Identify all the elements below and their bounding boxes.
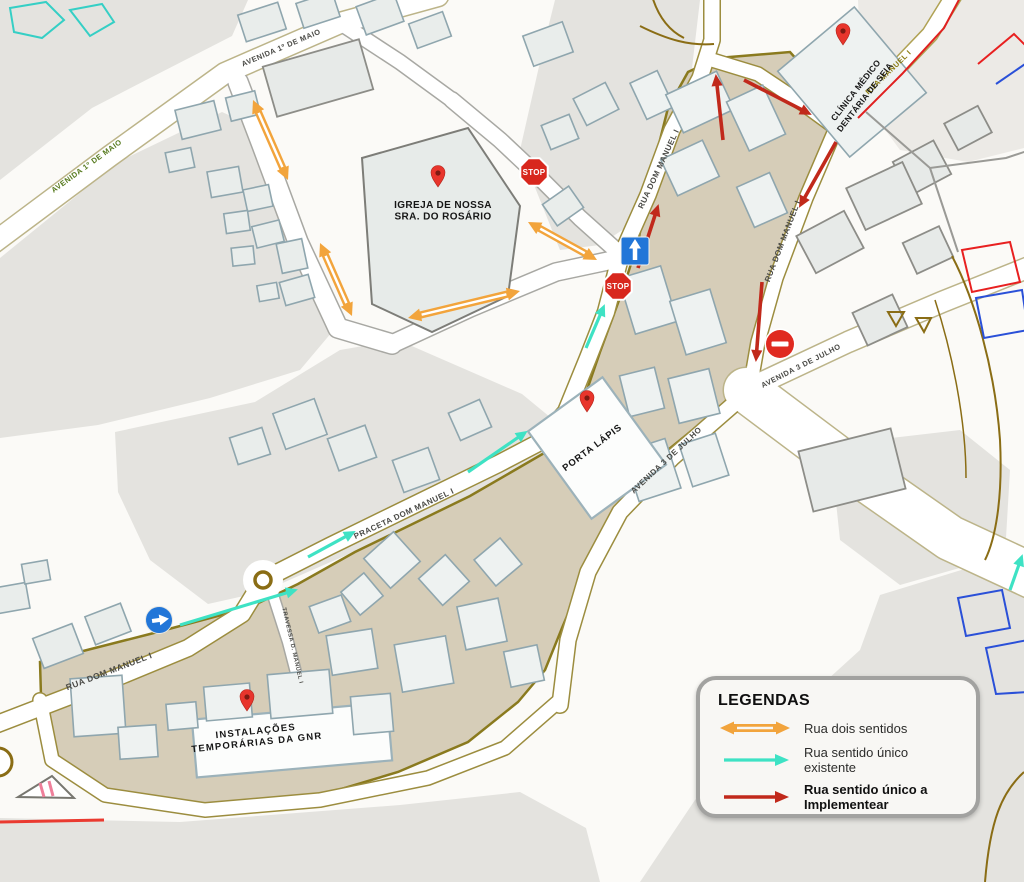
- one-way-new-arrow-icon: [718, 787, 792, 807]
- building: [903, 226, 954, 274]
- building: [457, 598, 507, 650]
- traffic-island: [18, 776, 74, 798]
- building: [504, 645, 545, 687]
- legend-item-one-way-new: Rua sentido único a Implementear: [718, 782, 958, 812]
- building: [276, 239, 308, 274]
- building: [394, 636, 454, 692]
- church-building: [362, 128, 520, 332]
- building: [165, 148, 195, 173]
- building: [326, 629, 378, 676]
- no-entry-sign: [765, 329, 796, 360]
- red-marking-line: [0, 820, 104, 822]
- building: [85, 603, 131, 645]
- legend-label-two-way: Rua dois sentidos: [804, 721, 907, 736]
- roundabout-island: [255, 572, 271, 588]
- stop-sign: STOP: [603, 271, 633, 301]
- mini-roundabout: [0, 748, 12, 776]
- building: [238, 2, 287, 42]
- building: [796, 211, 863, 273]
- legend: LEGENDAS Rua dois sentidos Rua sentido ú…: [696, 676, 980, 818]
- building: [207, 166, 243, 197]
- building: [0, 582, 30, 613]
- svg-text:STOP: STOP: [607, 282, 630, 291]
- building: [118, 725, 158, 760]
- stop-sign: STOP: [519, 157, 549, 187]
- one-way-existing-arrow-icon: [718, 750, 792, 770]
- svg-text:STOP: STOP: [523, 168, 546, 177]
- legend-label-one-way-existing: Rua sentido único existente: [804, 745, 958, 775]
- building: [231, 246, 255, 266]
- two-way-arrow-icon: [718, 718, 792, 738]
- legend-item-two-way: Rua dois sentidos: [718, 718, 958, 738]
- building: [257, 282, 279, 301]
- legend-label-one-way-new: Rua sentido único a Implementear: [804, 782, 928, 812]
- legend-title: LEGENDAS: [718, 692, 958, 710]
- building: [350, 693, 393, 734]
- one-way-up-sign: [621, 237, 649, 265]
- legend-item-one-way-existing: Rua sentido único existente: [718, 745, 958, 775]
- building: [409, 12, 452, 49]
- building: [166, 702, 198, 731]
- cadastral-outline-blue: [976, 290, 1024, 338]
- building: [243, 185, 273, 212]
- building: [21, 560, 50, 584]
- igreja-label: IGREJA DE NOSSASRA. DO ROSÁRIO: [394, 200, 492, 223]
- building: [224, 210, 251, 233]
